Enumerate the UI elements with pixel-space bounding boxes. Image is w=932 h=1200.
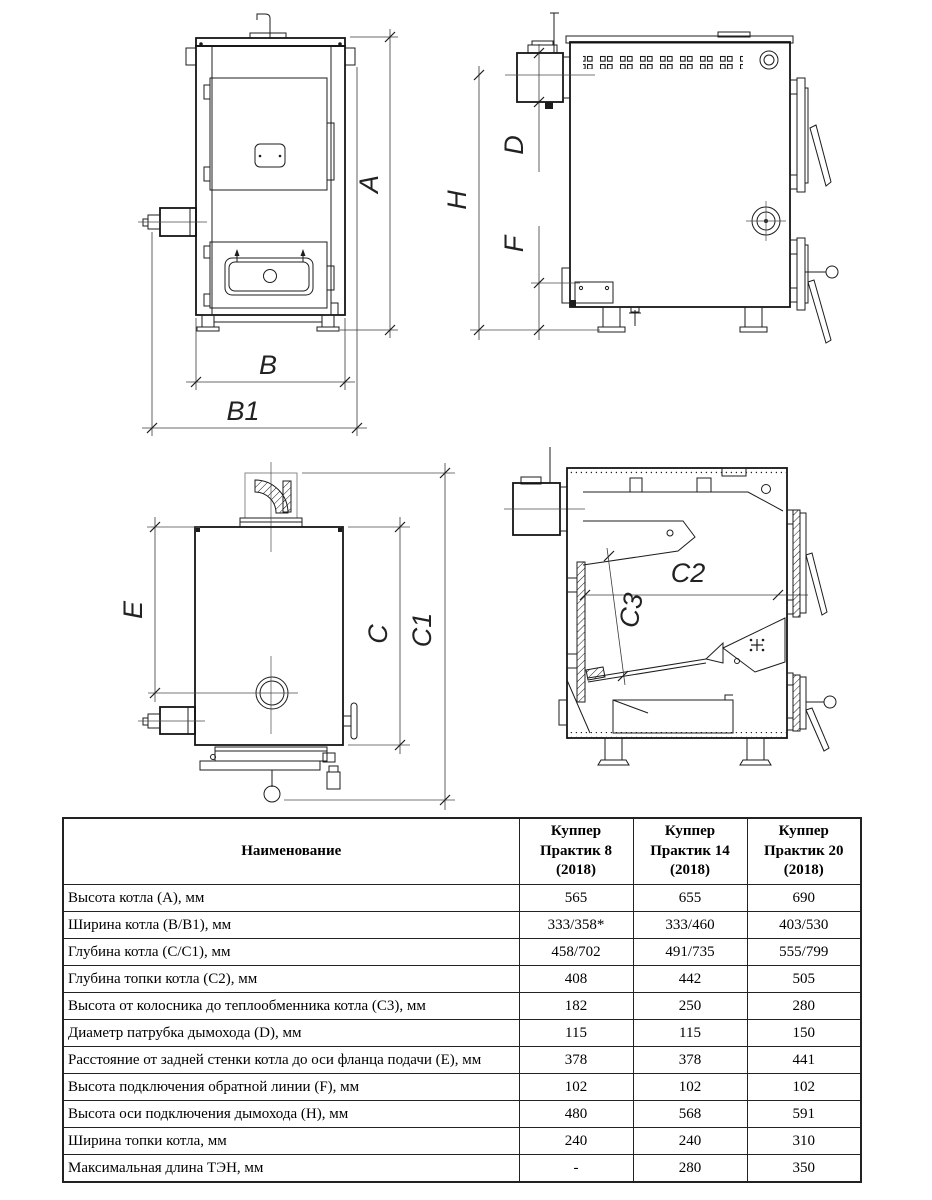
table-row: Диаметр патрубка дымохода (D), мм1151151… [63, 1020, 861, 1047]
front-door-top [215, 747, 327, 761]
spec-name: Высота оси подключения дымохода (Н), мм [63, 1101, 519, 1128]
technical-drawing: A B B1 [0, 0, 932, 812]
table-row: Высота котла (А), мм565655690 [63, 885, 861, 912]
dim-label-B: B [259, 350, 277, 380]
spec-value: 310 [747, 1128, 861, 1155]
spec-value: 280 [747, 993, 861, 1020]
spec-value: - [519, 1155, 633, 1183]
spec-name: Высота от колосника до теплообменника ко… [63, 993, 519, 1020]
inner-wall [577, 562, 585, 702]
header-name: Наименование [63, 818, 519, 885]
spec-value: 568 [633, 1101, 747, 1128]
dim-D: D [499, 44, 544, 172]
ash-pan [613, 700, 733, 733]
leg [202, 315, 214, 327]
lower-door-side [790, 238, 838, 343]
spec-value: 378 [633, 1047, 747, 1074]
specs-table: Наименование Куппер Практик 8 (2018) Куп… [62, 817, 862, 1183]
drain-stub [331, 303, 338, 315]
table-row: Расстояние от задней стенки котла до оси… [63, 1047, 861, 1074]
spec-name: Расстояние от задней стенки котла до оси… [63, 1047, 519, 1074]
dim-label-B1: B1 [226, 396, 259, 426]
dim-F: F [499, 226, 580, 340]
dim-label-H: H [442, 190, 472, 210]
boiler-shell [567, 468, 787, 738]
spec-name: Глубина котла (С/С1), мм [63, 939, 519, 966]
spec-value: 378 [519, 1047, 633, 1074]
table-header-row: Наименование Куппер Практик 8 (2018) Куп… [63, 818, 861, 885]
return-pipe-stub [562, 268, 570, 303]
dim-A: A [340, 29, 398, 338]
spec-value: 480 [519, 1101, 633, 1128]
dim-B1: B1 [142, 67, 367, 436]
rear-flange [160, 707, 195, 734]
top-view: E C C1 [118, 462, 455, 810]
junction-box [575, 282, 613, 303]
top-plate [196, 38, 345, 46]
shell-hole [762, 485, 771, 494]
boiler-drawing-page: A B B1 [0, 0, 932, 1200]
spec-value: 240 [633, 1128, 747, 1155]
spec-value: 150 [747, 1020, 861, 1047]
table-row: Высота оси подключения дымохода (Н), мм4… [63, 1101, 861, 1128]
spec-name: Максимальная длина ТЭН, мм [63, 1155, 519, 1183]
handle-ball [264, 786, 280, 802]
side-handle [343, 716, 351, 726]
header-model-14: Куппер Практик 14 (2018) [633, 818, 747, 885]
side-view: H D F [442, 13, 838, 343]
upper-door-hinge [204, 167, 210, 181]
spec-value: 408 [519, 966, 633, 993]
spec-value: 115 [633, 1020, 747, 1047]
spec-value: 240 [519, 1128, 633, 1155]
ball-handle [824, 696, 836, 708]
boiler-body-top [195, 527, 343, 745]
upper-door-hinge [204, 85, 210, 99]
dim-label-D: D [499, 135, 529, 155]
door-knob [264, 270, 277, 283]
front-view: A B B1 [138, 14, 398, 436]
spec-value: 333/358* [519, 912, 633, 939]
spec-value: 491/735 [633, 939, 747, 966]
spec-value: 333/460 [633, 912, 747, 939]
spec-value: 280 [633, 1155, 747, 1183]
spec-value: 115 [519, 1020, 633, 1047]
header-model-8: Куппер Практик 8 (2018) [519, 818, 633, 885]
dim-E: E [118, 517, 200, 702]
side-flange [746, 201, 786, 241]
spec-value: 591 [747, 1101, 861, 1128]
spec-value: 690 [747, 885, 861, 912]
leg [605, 738, 622, 760]
spec-value: 442 [633, 966, 747, 993]
leg [747, 738, 764, 760]
spec-value: 565 [519, 885, 633, 912]
door-handle [808, 280, 831, 343]
left-lug [186, 48, 196, 65]
dim-label-F: F [499, 234, 529, 252]
spec-name: Ширина котла (В/В1), мм [63, 912, 519, 939]
upper-door [210, 78, 327, 190]
boiler-body-front [196, 46, 345, 315]
spec-value: 350 [747, 1155, 861, 1183]
dim-label-C: C [363, 624, 393, 644]
vent-grid [583, 54, 743, 69]
door-handle [806, 553, 827, 615]
dim-H: H [442, 66, 600, 340]
table-row: Глубина котла (С/С1), мм458/702491/73555… [63, 939, 861, 966]
top-hole [760, 51, 778, 69]
spec-value: 458/702 [519, 939, 633, 966]
spec-name: Высота подключения обратной линии (F), м… [63, 1074, 519, 1101]
dim-C3: C3 [604, 548, 649, 685]
leg [603, 307, 620, 327]
ash-opening [225, 258, 313, 295]
table-row: Ширина котла (В/В1), мм333/358*333/46040… [63, 912, 861, 939]
leg [322, 315, 334, 327]
spec-name: Глубина топки котла (С2), мм [63, 966, 519, 993]
lower-door-section [787, 673, 836, 751]
spec-value: 182 [519, 993, 633, 1020]
grate [588, 659, 706, 678]
right-lug [345, 48, 355, 65]
dim-label-A: A [354, 175, 384, 195]
upper-door-side [790, 78, 831, 192]
spec-value: 250 [633, 993, 747, 1020]
door-handle [806, 708, 829, 751]
spec-value: 505 [747, 966, 861, 993]
spec-value: 403/530 [747, 912, 861, 939]
section-view: C2 C3 [504, 447, 836, 765]
header-model-20: Куппер Практик 20 (2018) [747, 818, 861, 885]
table-row: Высота подключения обратной линии (F), м… [63, 1074, 861, 1101]
dim-B: B [186, 318, 355, 390]
dim-label-C2: C2 [671, 558, 706, 588]
spec-name: Ширина топки котла, мм [63, 1128, 519, 1155]
dim-label-C3: C3 [613, 591, 649, 630]
ornament [750, 639, 765, 652]
spec-value: 655 [633, 885, 747, 912]
boiler-body-side [570, 42, 790, 307]
table-row: Максимальная длина ТЭН, мм-280350 [63, 1155, 861, 1183]
spec-value: 441 [747, 1047, 861, 1074]
spec-value: 102 [747, 1074, 861, 1101]
spec-name: Высота котла (А), мм [63, 885, 519, 912]
lower-door-hinge [204, 246, 210, 258]
spec-value: 102 [519, 1074, 633, 1101]
spec-value: 555/799 [747, 939, 861, 966]
table-row: Ширина топки котла, мм240240310 [63, 1128, 861, 1155]
dim-label-C1: C1 [407, 613, 437, 648]
damper-rod [257, 14, 270, 38]
spec-name: Диаметр патрубка дымохода (D), мм [63, 1020, 519, 1047]
dim-label-E: E [118, 600, 148, 619]
spec-value: 102 [633, 1074, 747, 1101]
flue-pipe [517, 53, 563, 102]
lower-door-hinge [204, 294, 210, 306]
ball-handle [826, 266, 838, 278]
table-row: Высота от колосника до теплообменника ко… [63, 993, 861, 1020]
leg [745, 307, 762, 327]
table-row: Глубина топки котла (С2), мм408442505 [63, 966, 861, 993]
upper-door-section [787, 510, 827, 617]
dim-C2: C2 [580, 558, 808, 600]
door-handle [810, 125, 831, 186]
